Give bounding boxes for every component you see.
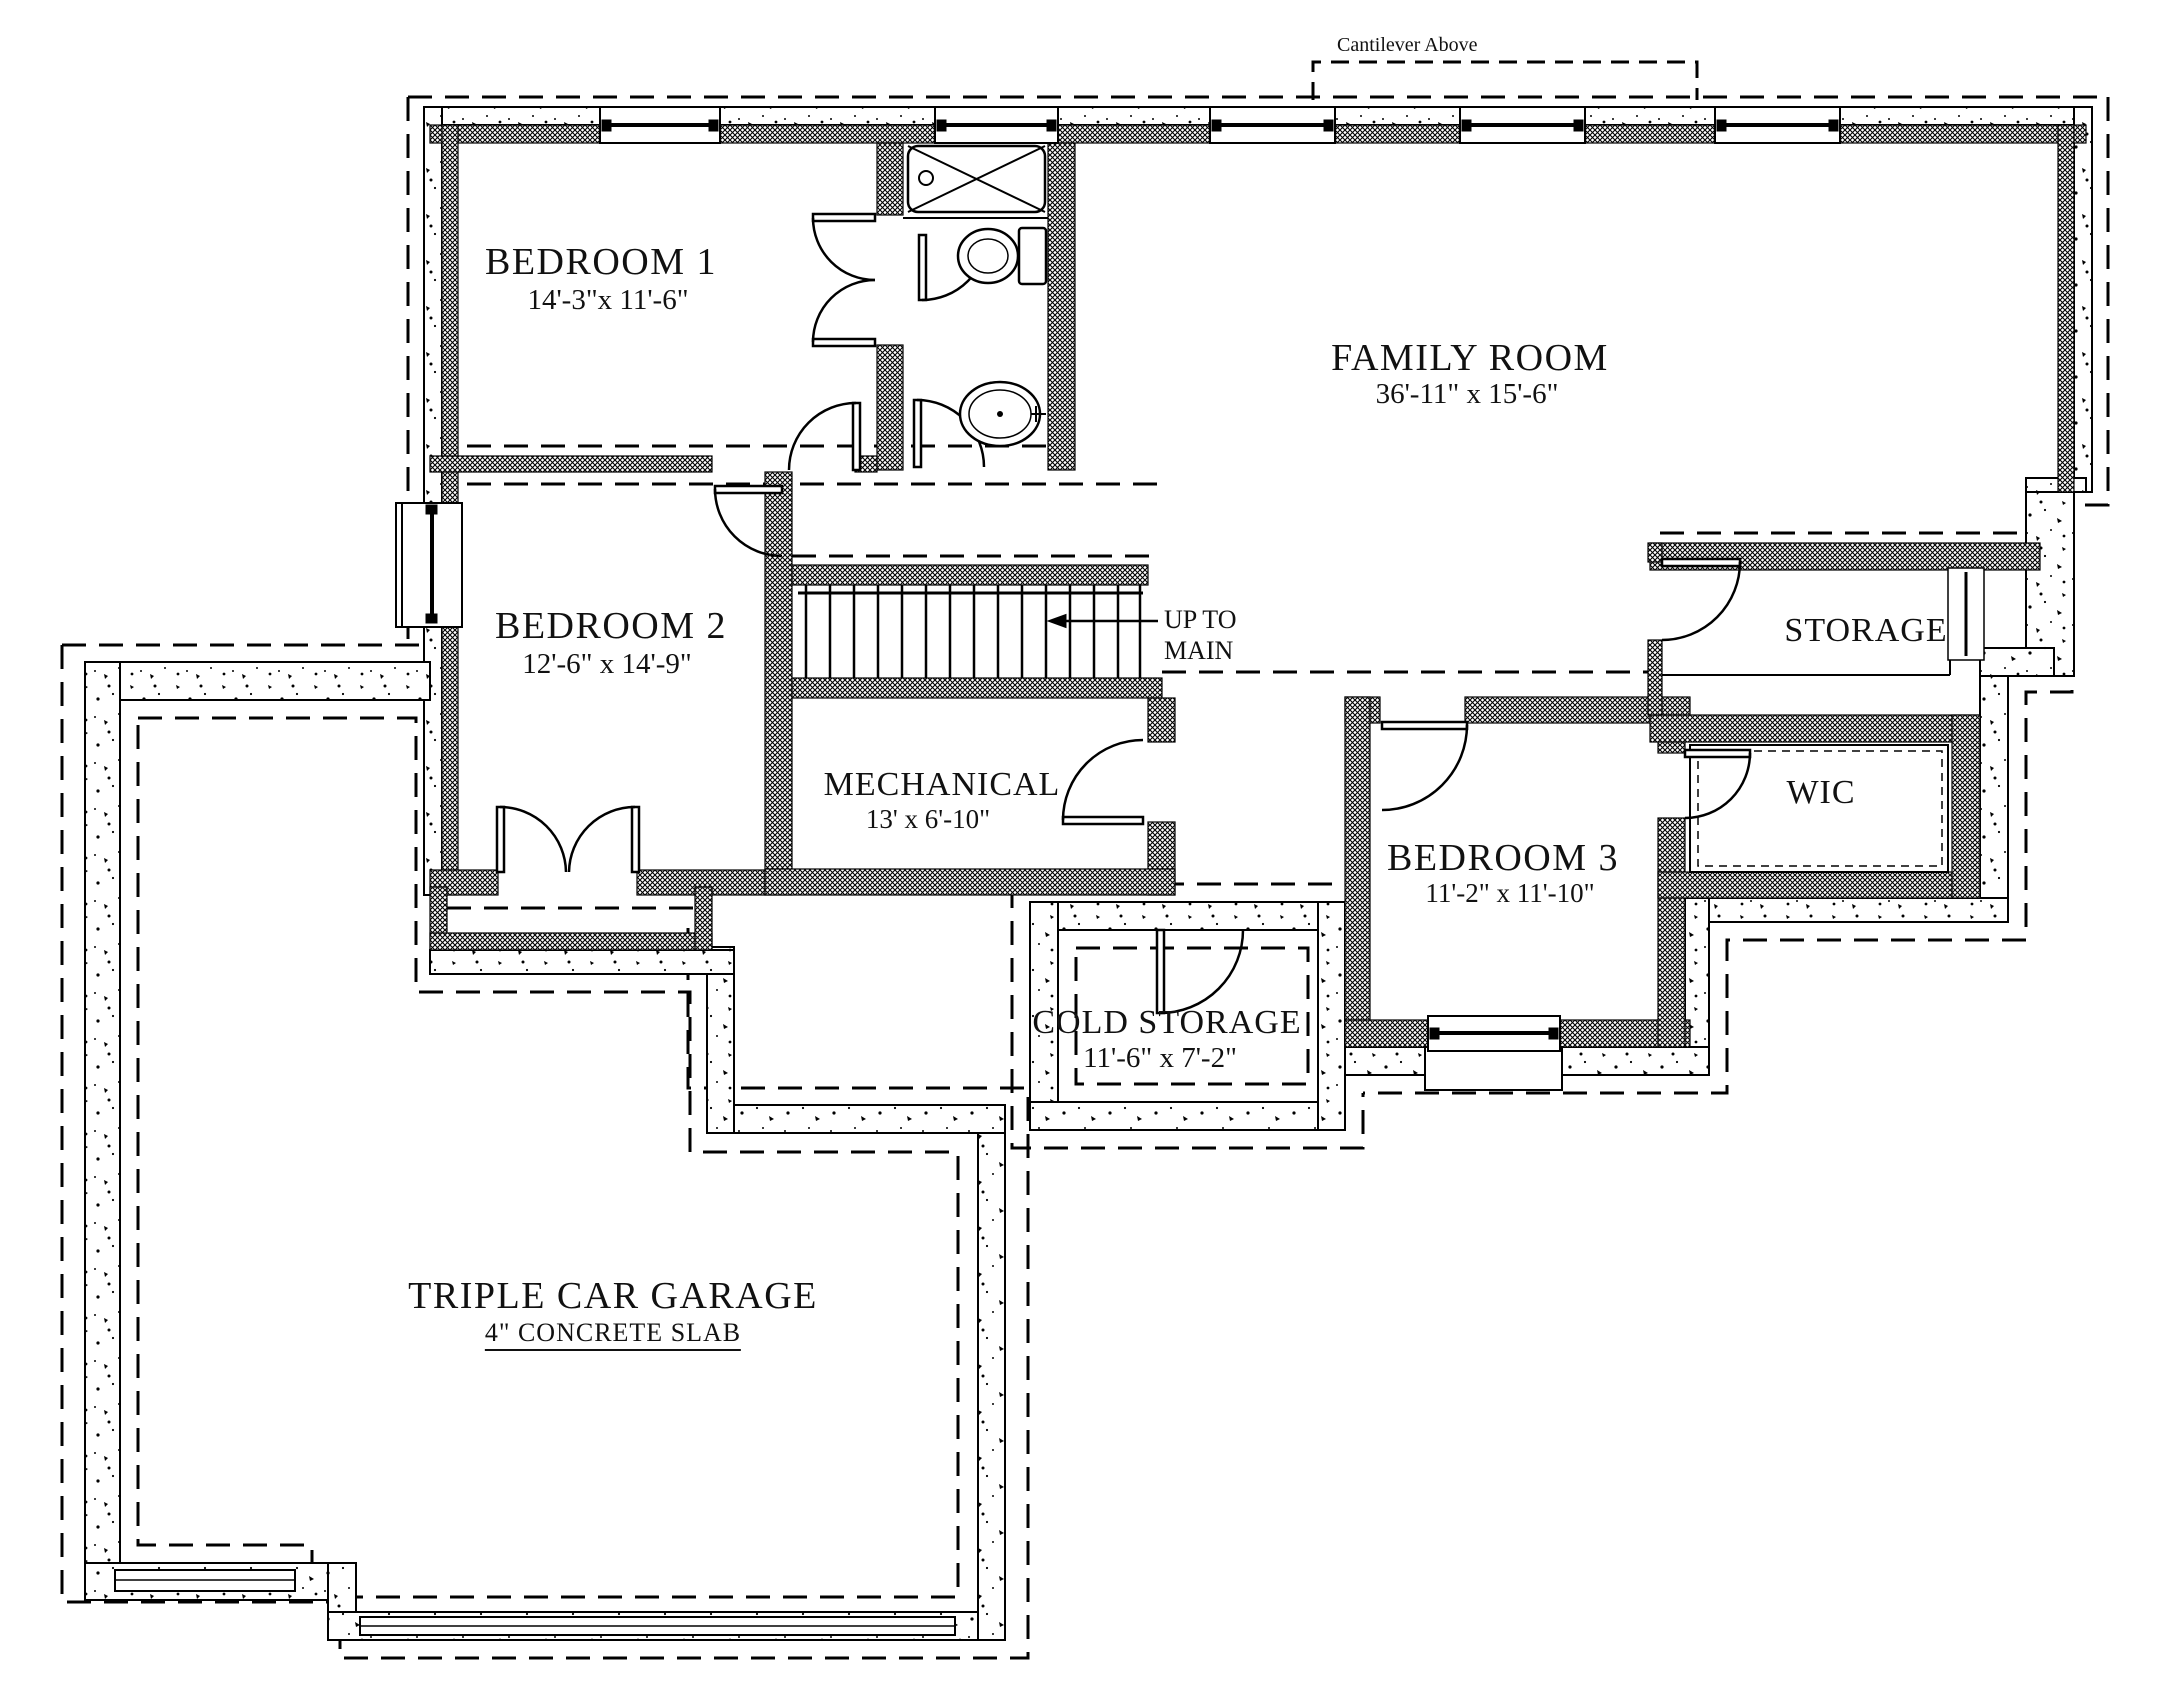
- room-label-bedroom3: BEDROOM 3: [1387, 836, 1619, 880]
- room-label-bedroom2: BEDROOM 2: [495, 604, 727, 648]
- room-label-garage: TRIPLE CAR GARAGE: [408, 1274, 818, 1318]
- room-label-cold-storage: COLD STORAGE: [1032, 1004, 1301, 1042]
- stair-direction-arrow: [1048, 615, 1158, 628]
- room-dims-bedroom2: 12'-6" x 14'-9": [522, 648, 691, 681]
- room-label-storage: STORAGE: [1784, 612, 1947, 650]
- room-label-wic: WIC: [1786, 774, 1855, 812]
- window-top-3: [1210, 107, 1335, 143]
- room-dims-mechanical: 13' x 6'-10": [866, 804, 990, 835]
- window-top-1: [600, 107, 720, 143]
- bedroom2-closet-doors: [497, 807, 639, 872]
- mechanical-door: [1063, 740, 1143, 824]
- cantilever-outline: [1313, 62, 1697, 100]
- room-label-bedroom1: BEDROOM 1: [485, 240, 717, 284]
- floor-plan-sheet: Cantilever Above BEDROOM 1 14'-3"x 11'-6…: [0, 0, 2160, 1683]
- window-bedroom3: [1428, 1016, 1560, 1051]
- window-top-2: [935, 107, 1058, 143]
- bedroom3-window-well: [1425, 1047, 1562, 1090]
- floor-plan-canvas: [0, 0, 2160, 1683]
- window-bedroom2: [402, 503, 462, 627]
- stair-label: UP TO MAIN: [1164, 604, 1237, 666]
- stairs: [798, 585, 1143, 678]
- bedroom1-entry-door: [789, 403, 860, 470]
- cold-storage-door: [1157, 930, 1243, 1013]
- room-dims-cold-storage: 11'-6" x 7'-2": [1083, 1042, 1237, 1075]
- room-dims-bedroom3: 11'-2" x 11'-10": [1425, 878, 1594, 909]
- garage-slab-note: 4" CONCRETE SLAB: [485, 1318, 741, 1351]
- bathtub: [908, 146, 1045, 212]
- stair-label-line2: MAIN: [1164, 635, 1237, 666]
- bedroom3-door: [1382, 722, 1467, 810]
- window-storage: [1948, 568, 1984, 660]
- room-note-garage: 4" CONCRETE SLAB: [485, 1318, 741, 1348]
- sink: [960, 382, 1046, 446]
- toilet: [958, 228, 1046, 284]
- cantilever-label: Cantilever Above: [1337, 34, 1478, 57]
- room-dims-bedroom1: 14'-3"x 11'-6": [527, 284, 688, 317]
- stair-label-line1: UP TO: [1164, 604, 1237, 635]
- room-dims-family-room: 36'-11" x 15'-6": [1376, 378, 1559, 411]
- window-top-5: [1715, 107, 1840, 143]
- room-label-mechanical: MECHANICAL: [824, 766, 1061, 804]
- room-label-family-room: FAMILY ROOM: [1331, 336, 1609, 380]
- bedroom1-closet-doors: [813, 214, 875, 346]
- window-top-4: [1460, 107, 1585, 143]
- wic-door: [1685, 750, 1750, 818]
- storage-door: [1662, 559, 1740, 640]
